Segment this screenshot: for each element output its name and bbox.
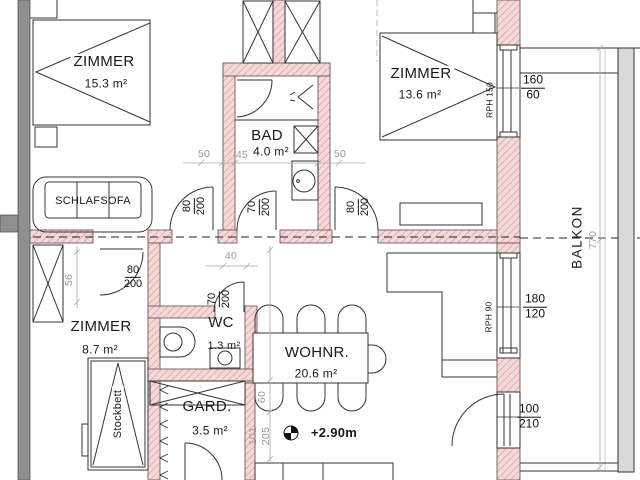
- parapet-zimmer2: RPH 150: [485, 82, 494, 118]
- chair-icon: [338, 383, 366, 411]
- chair-icon: [338, 305, 366, 333]
- door-dim-zimmer3: 80200: [124, 264, 142, 290]
- parapet-wohnzimmer: RPH 90: [484, 302, 493, 333]
- nightstand-icon: [473, 13, 495, 33]
- coat-hooks-icon: [160, 386, 168, 479]
- door-dim-balkon: 100210: [517, 403, 541, 432]
- chair-icon: [297, 383, 325, 411]
- wohnzimmer-name: WOHNR.: [285, 345, 349, 362]
- wc-name: WC: [208, 315, 234, 332]
- dim-101: 101: [248, 427, 260, 445]
- dim-60: 60: [257, 391, 269, 403]
- outline-lines: [30, 0, 497, 18]
- chair-icon: [255, 305, 283, 333]
- floor-plan: ZIMMER 15.3 m² BAD 4.0 m² ZIMMER 13.6 m²…: [0, 0, 640, 480]
- zimmer2-area: 13.6 m²: [396, 88, 445, 101]
- dim-40: 40: [225, 251, 237, 263]
- dim-45: 45: [236, 150, 248, 162]
- balkon-name: BALKON: [571, 205, 586, 269]
- stockbett-label: Stockbett: [112, 387, 124, 442]
- balcony-door: [452, 392, 520, 448]
- window-wohnzimmer: [497, 253, 520, 358]
- nightstand-icon: [35, 127, 57, 147]
- bed-icon: [33, 20, 150, 125]
- schlafsofa-label: SCHLAFSOFA: [55, 195, 131, 207]
- sideboard-icon: [400, 203, 482, 225]
- dim-50-right: 50: [334, 149, 346, 161]
- level-marker-icon: [284, 426, 298, 440]
- dim-56: 56: [64, 274, 76, 286]
- bad-name: BAD: [251, 128, 283, 145]
- garderobe-area: 3.5 m²: [192, 424, 228, 437]
- zimmer3-name: ZIMMER: [71, 319, 132, 336]
- door-dim-zimmer1: 80200: [181, 197, 207, 215]
- zimmer1-area: 15.3 m²: [82, 77, 131, 90]
- concrete-walls: [0, 0, 30, 480]
- bath-sink-icon: [292, 161, 318, 200]
- chair-icon: [297, 305, 325, 333]
- window-dim-wohnzimmer: 180120: [523, 293, 547, 322]
- zimmer2-furniture: [380, 13, 497, 225]
- toilet-icon: [160, 327, 195, 357]
- dim-205: 205: [261, 427, 273, 445]
- zimmer2-name: ZIMMER: [388, 66, 455, 83]
- chair-icon: [368, 345, 386, 373]
- level-marker-value: +2.90m: [311, 426, 357, 440]
- door-dim-bad: 70200: [246, 198, 272, 216]
- floor-plan-drawing: [0, 0, 640, 480]
- dim-770: 770: [588, 231, 600, 249]
- zimmer3-area: 8.7 m²: [82, 343, 118, 356]
- door-dim-wc: 70200: [206, 290, 232, 308]
- window-dim-zimmer2: 16060: [521, 74, 545, 103]
- door-dim-zimmer2: 80200: [345, 198, 371, 216]
- shower-icon: [298, 85, 313, 109]
- garderobe-name: GARD.: [182, 399, 231, 416]
- wc-area: 1.3 m²: [208, 340, 241, 352]
- window-zimmer2: [497, 45, 520, 137]
- bad-area: 4.0 m²: [253, 145, 289, 158]
- zimmer1-name: ZIMMER: [71, 54, 138, 71]
- wohnzimmer-area: 20.6 m²: [295, 367, 338, 380]
- dim-50-left: 50: [198, 149, 210, 161]
